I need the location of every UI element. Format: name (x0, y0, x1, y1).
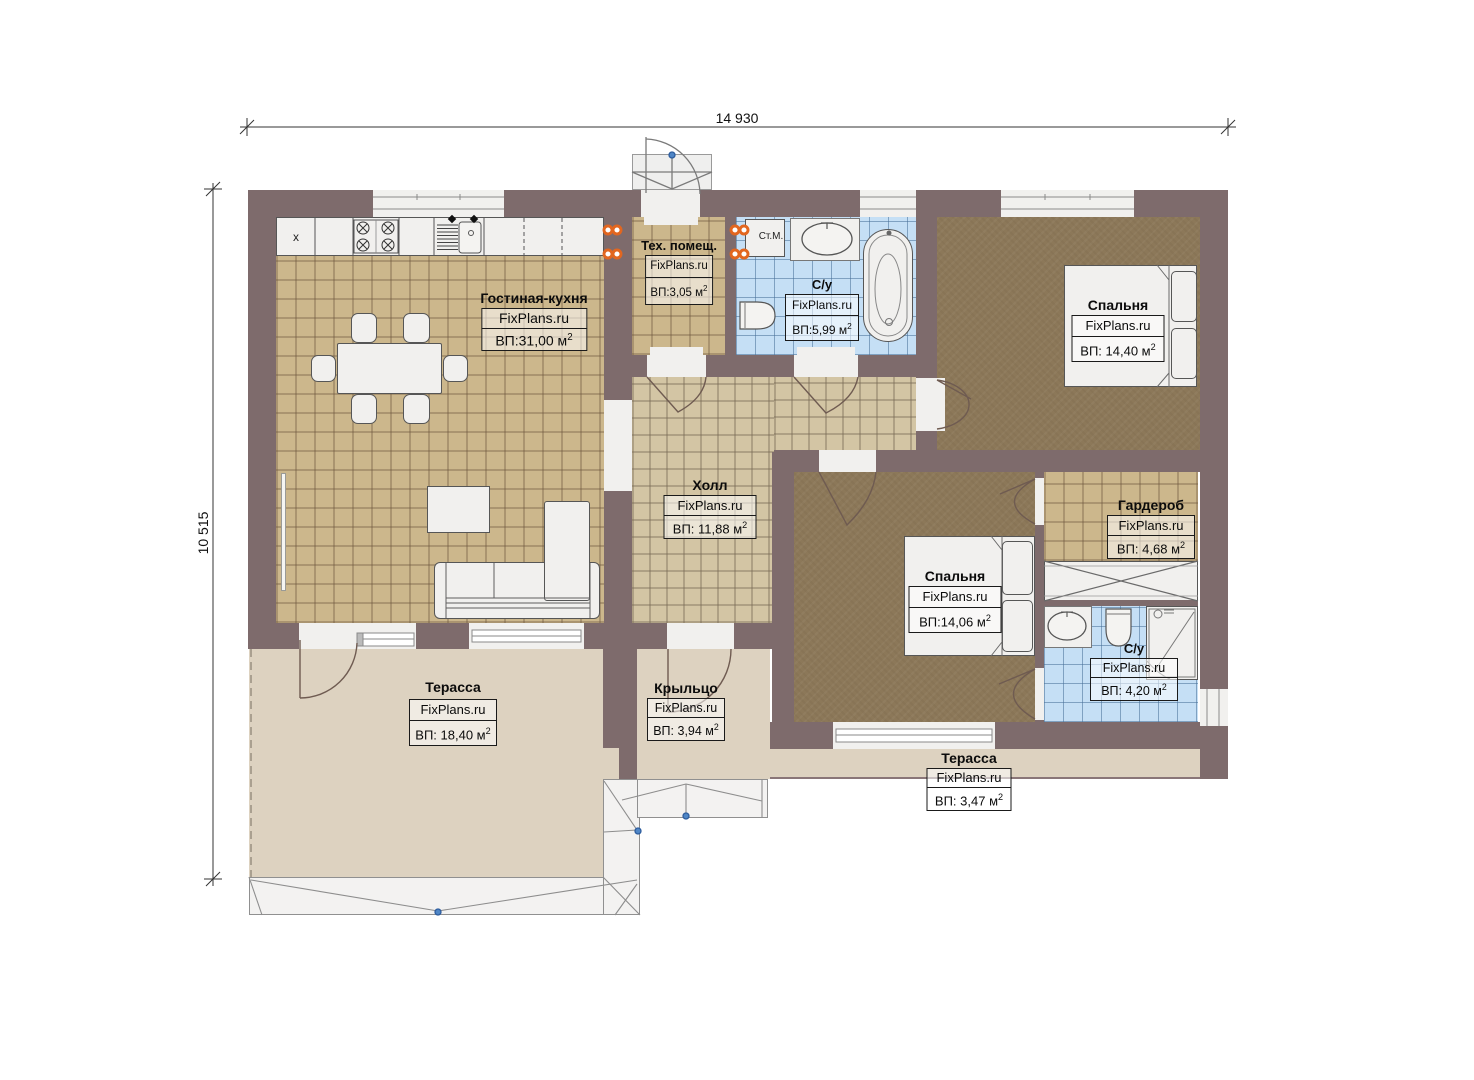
svg-text:10 515: 10 515 (195, 511, 211, 554)
svg-text:x: x (293, 230, 299, 244)
svg-text:14 930: 14 930 (716, 110, 759, 126)
